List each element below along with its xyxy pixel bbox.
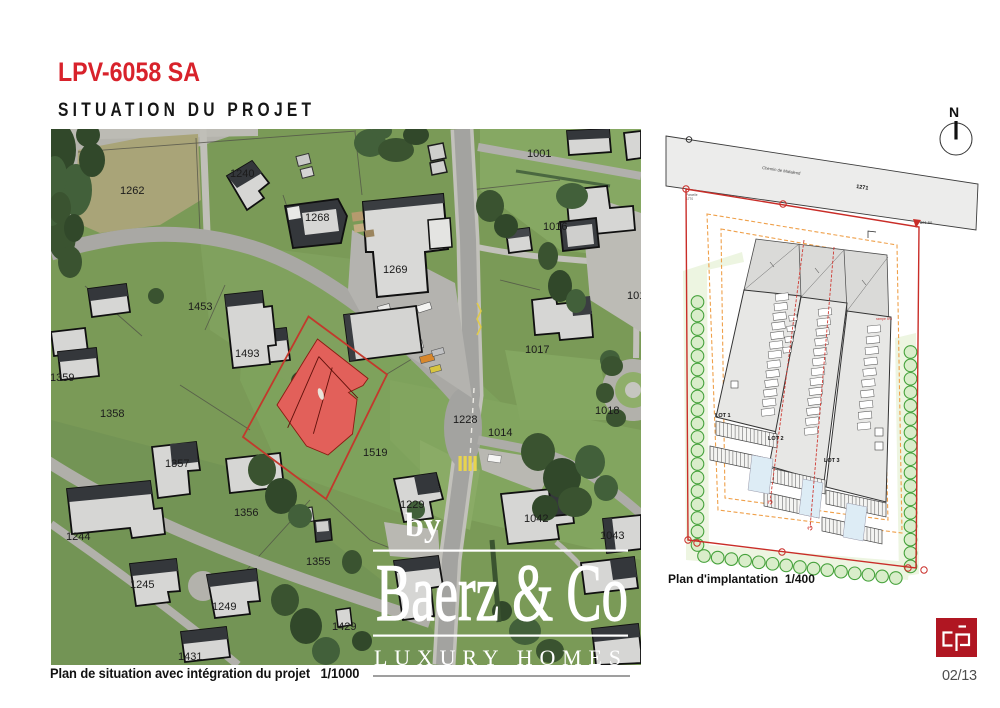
svg-text:N: N [949, 104, 959, 120]
svg-text:by: by [405, 507, 441, 544]
svg-text:1519: 1519 [363, 447, 387, 459]
svg-text:1359: 1359 [51, 372, 74, 384]
svg-text:101: 101 [627, 290, 641, 302]
svg-text:801.50: 801.50 [920, 220, 933, 225]
svg-text:rampe 5%: rampe 5% [876, 317, 892, 321]
svg-text:1249: 1249 [212, 601, 236, 613]
svg-text:1493: 1493 [235, 348, 259, 360]
svg-text:1240: 1240 [230, 168, 254, 180]
svg-text:1269: 1269 [383, 264, 407, 276]
svg-text:1245: 1245 [130, 579, 154, 591]
svg-text:1228: 1228 [453, 414, 477, 426]
svg-text:Baerz & Co: Baerz & Co [376, 547, 628, 638]
svg-text:1358: 1358 [100, 408, 124, 420]
svg-text:1268: 1268 [305, 212, 329, 224]
svg-text:1042: 1042 [524, 513, 548, 525]
svg-text:1429: 1429 [332, 621, 356, 633]
svg-text:LOT 1: LOT 1 [715, 413, 731, 419]
svg-text:1017: 1017 [525, 344, 549, 356]
svg-text:1355: 1355 [306, 556, 330, 568]
svg-text:1356: 1356 [234, 507, 258, 519]
svg-text:LOT 3: LOT 3 [824, 458, 840, 464]
svg-text:1453: 1453 [188, 301, 212, 313]
svg-text:1431: 1431 [178, 651, 202, 663]
svg-text:1770: 1770 [686, 197, 693, 201]
svg-text:1016: 1016 [543, 221, 567, 233]
svg-text:1244: 1244 [66, 531, 90, 543]
svg-text:1357: 1357 [165, 458, 189, 470]
svg-text:1018: 1018 [595, 405, 619, 417]
svg-text:1262: 1262 [120, 185, 144, 197]
svg-text:1043: 1043 [600, 530, 624, 542]
svg-text:1014: 1014 [488, 427, 512, 439]
svg-text:1001: 1001 [527, 148, 551, 160]
svg-text:LOT 2: LOT 2 [768, 436, 784, 442]
svg-text:LUXURY HOMES: LUXURY HOMES [374, 645, 627, 665]
